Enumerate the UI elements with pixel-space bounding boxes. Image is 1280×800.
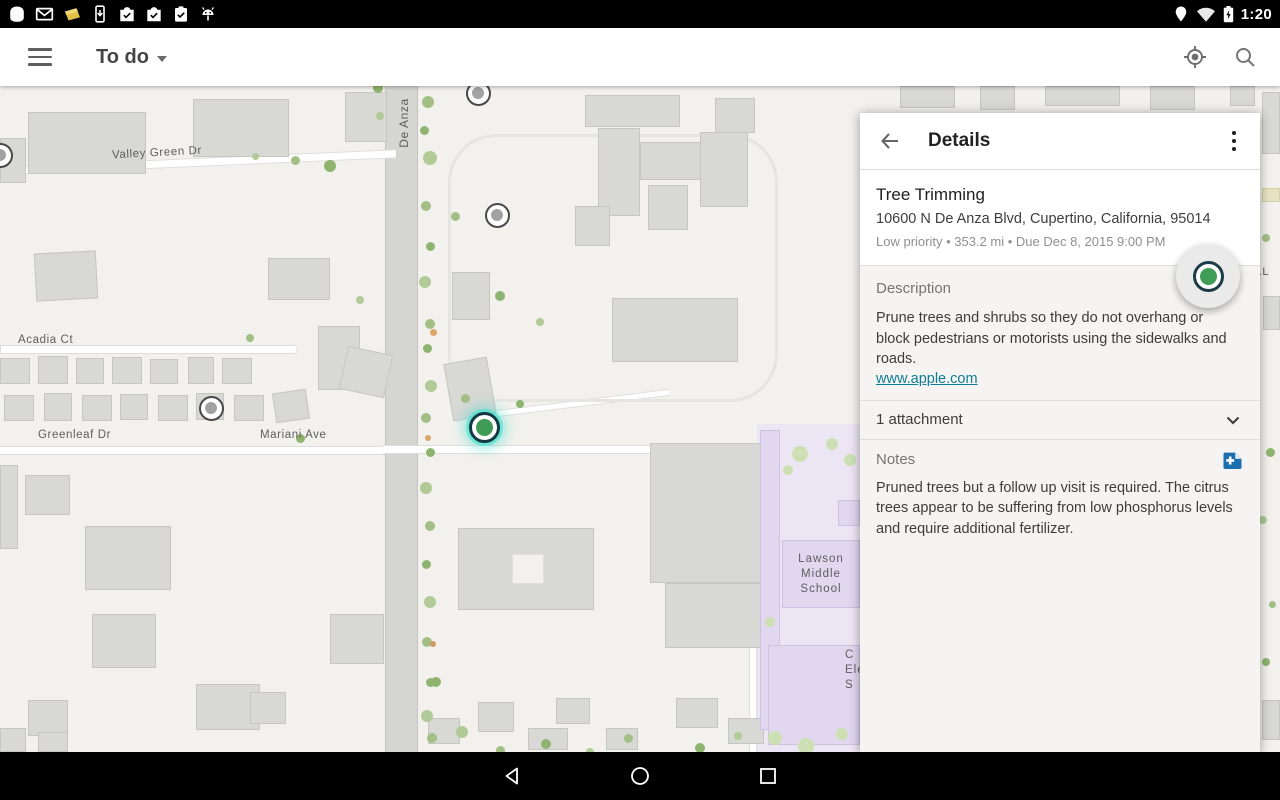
map-tree xyxy=(844,454,856,466)
road-greenleaf xyxy=(0,446,385,455)
map-building xyxy=(150,359,178,384)
map-tree xyxy=(783,465,793,475)
map-building xyxy=(34,250,98,301)
back-arrow-icon[interactable] xyxy=(878,129,902,153)
map-tree xyxy=(765,617,775,627)
map-building xyxy=(650,443,762,583)
nav-recents-button[interactable] xyxy=(704,765,832,787)
map-tree xyxy=(424,596,436,608)
map-tree xyxy=(516,400,524,408)
map-tree xyxy=(246,334,254,342)
map-building xyxy=(556,698,590,724)
add-note-icon[interactable] xyxy=(1221,451,1244,471)
android-screen: 1:20 To do Valley Green Dr De Anza Acadi… xyxy=(0,0,1280,800)
map-building xyxy=(112,357,142,384)
map-building xyxy=(188,357,214,384)
task-address: 10600 N De Anza Blvd, Cupertino, Califor… xyxy=(876,211,1244,227)
map-tree xyxy=(734,732,742,740)
map-tree xyxy=(356,296,364,304)
road-acadia xyxy=(0,345,298,354)
map-building xyxy=(234,395,264,421)
gmail-icon xyxy=(35,5,54,23)
map-tree xyxy=(420,126,429,135)
map-tree xyxy=(252,153,259,160)
map-tree xyxy=(425,435,431,441)
task-meta: Low priority • 353.2 mi • Due Dec 8, 201… xyxy=(876,234,1244,249)
map-building xyxy=(575,206,610,246)
map-building xyxy=(598,128,640,216)
map-building xyxy=(640,142,702,180)
details-header: Details xyxy=(860,113,1260,169)
street-label-mariani: Mariani Ave xyxy=(260,429,326,441)
street-label-greenleaf: Greenleaf Dr xyxy=(38,429,111,441)
notes-body: Pruned trees but a follow up visit is re… xyxy=(876,478,1236,540)
map-building xyxy=(339,346,393,399)
map-tree xyxy=(423,344,432,353)
map-tree xyxy=(422,96,434,108)
map-tree xyxy=(422,560,431,569)
map-building xyxy=(900,86,955,108)
map-tree xyxy=(836,728,848,740)
map-tree xyxy=(495,291,505,301)
battery-charging-icon xyxy=(1223,5,1234,23)
map-building xyxy=(700,132,748,207)
recents-square-icon xyxy=(757,765,779,787)
map-tree xyxy=(430,641,436,647)
map-building xyxy=(648,185,688,230)
map-building xyxy=(612,298,738,362)
map-building xyxy=(585,95,680,127)
back-triangle-icon xyxy=(501,765,523,787)
map-tree xyxy=(1262,658,1270,666)
notes-label: Notes xyxy=(876,451,915,468)
attachments-label: 1 attachment xyxy=(876,411,963,428)
description-link[interactable]: www.apple.com xyxy=(876,371,978,387)
map-tree xyxy=(456,726,468,738)
map-tree xyxy=(376,112,384,120)
map-building xyxy=(0,465,18,549)
nav-home-button[interactable] xyxy=(576,765,704,787)
home-circle-icon xyxy=(629,765,651,787)
map-tree xyxy=(421,201,431,211)
nav-back-button[interactable] xyxy=(448,765,576,787)
map-building xyxy=(715,98,755,133)
gps-locate-icon[interactable] xyxy=(1182,44,1208,70)
app-toolbar: To do xyxy=(0,28,1280,86)
android-robot-icon xyxy=(199,5,217,23)
street-label-acadia: Acadia Ct xyxy=(18,334,73,346)
map-tree xyxy=(421,413,431,423)
task-marker[interactable] xyxy=(466,86,491,106)
map-building xyxy=(980,86,1015,110)
description-body: Prune trees and shrubs so they do not ov… xyxy=(876,308,1228,370)
map-building xyxy=(676,698,718,728)
device-download-icon xyxy=(91,5,109,23)
map-building xyxy=(330,614,384,664)
map-building xyxy=(478,702,514,732)
location-pin-icon xyxy=(1173,5,1189,23)
android-nav-bar xyxy=(0,752,1280,800)
map-tree xyxy=(425,380,437,392)
poi-label-lawson-school: Lawson Middle School xyxy=(781,552,861,597)
map-tree xyxy=(768,731,782,745)
map-building xyxy=(82,395,112,421)
map-building xyxy=(272,389,310,423)
map-tree xyxy=(826,438,838,450)
map-tree xyxy=(324,160,336,172)
map-building xyxy=(158,395,188,421)
status-system-icons: 1:20 xyxy=(1173,5,1272,23)
map-building xyxy=(728,718,764,744)
map-building xyxy=(28,700,68,736)
map-tree xyxy=(423,151,437,165)
map-tree xyxy=(624,734,633,743)
map-tree xyxy=(419,276,431,288)
map-tree xyxy=(461,394,470,403)
map-building xyxy=(1230,86,1255,106)
map-building xyxy=(85,526,171,590)
note-yellow-icon xyxy=(63,5,82,23)
map-building xyxy=(4,395,34,421)
map-tree xyxy=(541,739,551,749)
map-tree xyxy=(1262,234,1270,242)
todo-dropdown[interactable]: To do xyxy=(96,46,167,69)
map-building xyxy=(512,554,544,584)
map-tree xyxy=(1266,448,1275,457)
map-building xyxy=(222,358,252,384)
map-building xyxy=(25,475,70,515)
notes-section: Notes Pruned trees but a follow up visit… xyxy=(860,440,1260,554)
marker-symbol-icon xyxy=(1193,261,1224,292)
kebab-menu-icon[interactable] xyxy=(1226,127,1243,156)
map-building xyxy=(76,358,104,384)
task-marker-selected[interactable] xyxy=(469,412,500,443)
wifi-icon xyxy=(1196,6,1216,23)
map-tree xyxy=(536,318,544,326)
map-tree xyxy=(430,329,437,336)
map-tree xyxy=(425,521,435,531)
map-tree xyxy=(431,677,441,687)
status-bar: 1:20 xyxy=(0,0,1280,28)
map-tree xyxy=(420,482,432,494)
clipboard-check-icon xyxy=(172,5,190,23)
attachments-row[interactable]: 1 attachment xyxy=(860,400,1260,440)
road-de-anza xyxy=(385,86,418,752)
notification-blob-icon xyxy=(8,5,26,23)
task-marker[interactable] xyxy=(199,396,224,421)
map-building xyxy=(1262,188,1280,202)
map-tree xyxy=(426,242,435,251)
map-building xyxy=(1150,86,1195,110)
map-building xyxy=(606,728,638,750)
street-label-de-anza: De Anza xyxy=(397,88,411,158)
map-building xyxy=(452,272,490,320)
chevron-down-icon xyxy=(1222,409,1244,431)
map-building xyxy=(1045,86,1120,106)
task-marker-badge[interactable] xyxy=(1176,244,1240,308)
map-building xyxy=(44,393,72,421)
map-building xyxy=(193,99,289,157)
search-icon[interactable] xyxy=(1232,44,1258,70)
map-building xyxy=(38,356,68,384)
map-tree xyxy=(451,212,460,221)
panel-title: Details xyxy=(928,130,990,152)
map-building xyxy=(120,394,148,420)
map-building xyxy=(28,112,146,174)
map-building xyxy=(0,728,26,752)
map-building xyxy=(0,358,30,384)
details-panel: Details Tree Trimming 10600 N De Anza Bl… xyxy=(860,113,1260,752)
map-tree xyxy=(792,446,808,462)
map-tree xyxy=(425,319,435,329)
map-building xyxy=(1262,700,1280,740)
map-tree xyxy=(798,738,814,752)
map-building xyxy=(268,258,330,300)
status-time: 1:20 xyxy=(1241,6,1272,23)
todo-dropdown-label: To do xyxy=(96,46,149,69)
map-building xyxy=(250,692,286,724)
map-tree xyxy=(421,710,433,722)
map-tree xyxy=(426,448,435,457)
map-tree xyxy=(695,743,705,752)
map-building xyxy=(38,732,68,752)
map-tree xyxy=(1259,516,1267,524)
hamburger-menu-icon[interactable] xyxy=(28,48,52,66)
map-tree xyxy=(1269,601,1276,608)
task-marker[interactable] xyxy=(485,203,510,228)
task-title: Tree Trimming xyxy=(876,185,1244,205)
caret-down-icon xyxy=(157,56,167,62)
playstore-check-icon xyxy=(145,5,163,23)
playstore-check-icon xyxy=(118,5,136,23)
map-building xyxy=(1263,296,1280,330)
map-building xyxy=(838,500,860,526)
map-tree xyxy=(427,733,437,743)
status-notification-icons xyxy=(8,5,217,23)
map-building xyxy=(92,614,156,668)
map-tree xyxy=(291,156,300,165)
map-building xyxy=(1262,92,1280,154)
map-building xyxy=(665,583,762,648)
